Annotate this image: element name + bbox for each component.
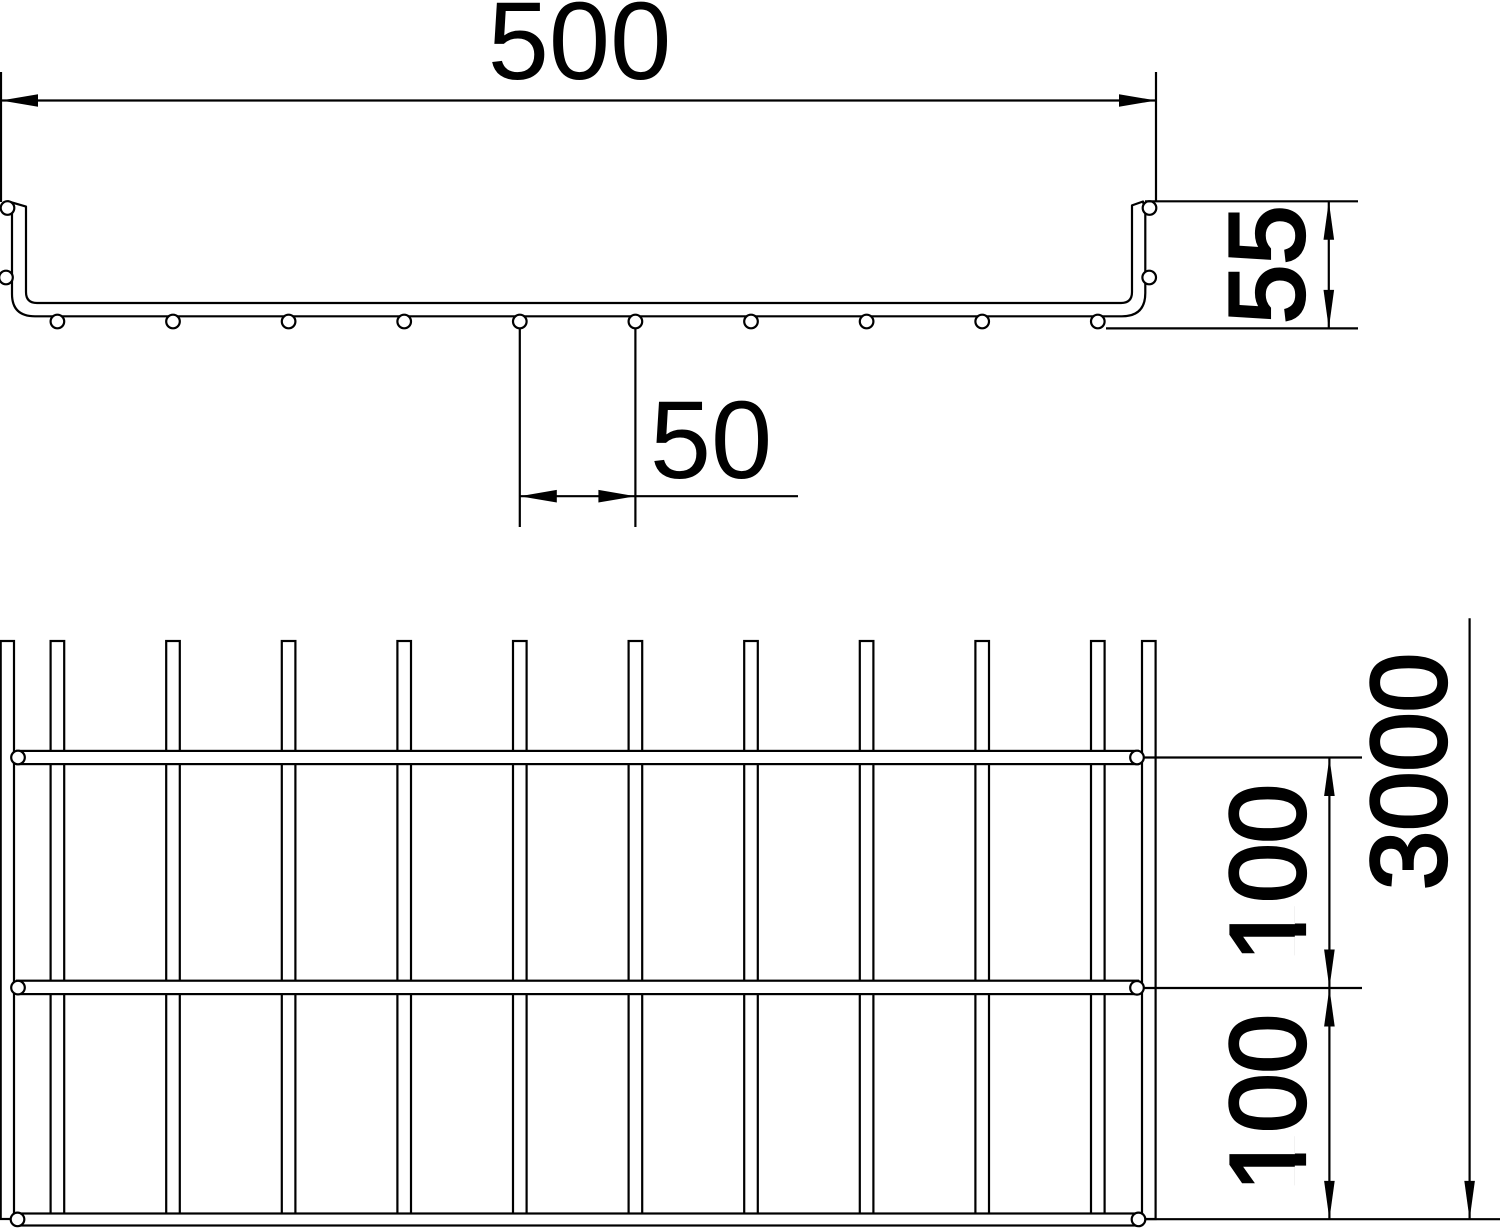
svg-text:500: 500	[488, 0, 672, 103]
svg-text:3000: 3000	[1349, 653, 1468, 890]
svg-text:55: 55	[1207, 205, 1326, 323]
svg-text:100: 100	[1209, 784, 1328, 962]
svg-text:100: 100	[1209, 1014, 1328, 1192]
svg-text:50: 50	[650, 379, 772, 502]
